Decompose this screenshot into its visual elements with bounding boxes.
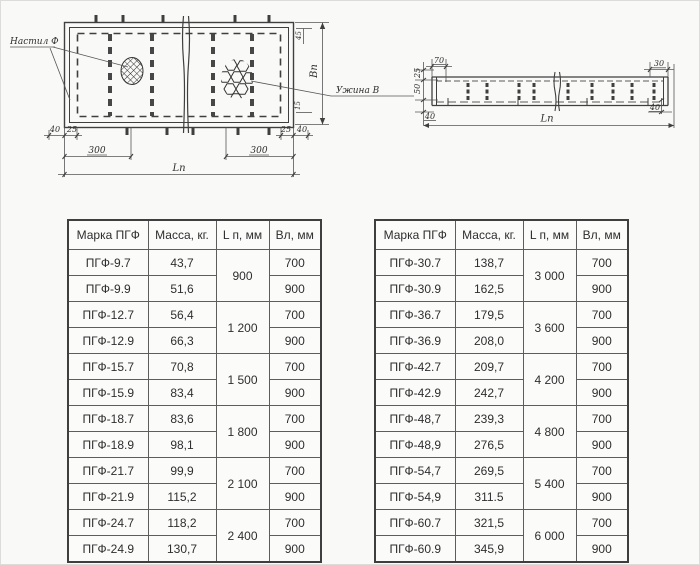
cell-mark: ПГФ-24.7 (68, 510, 148, 536)
cell-width: 900 (576, 276, 628, 302)
cell-mark: ПГФ-30.9 (375, 276, 455, 302)
elev-dim-30: 30 (644, 59, 674, 77)
cell-mark: ПГФ-42.7 (375, 354, 455, 380)
dim-40-right: 40 (296, 125, 307, 134)
cell-width: 900 (269, 328, 321, 354)
cell-mass: 321,5 (455, 510, 523, 536)
elev-dim-70: 70 (426, 56, 452, 82)
dim-300-right: 300 (250, 146, 267, 156)
header-row: Марка ПГФМасса, кг.L п, ммВл, мм (375, 220, 628, 250)
cell-width: 900 (576, 432, 628, 458)
hatched-opening (121, 58, 143, 85)
callout-nastil: Настил Ф (9, 37, 59, 47)
table-row: ПГФ-24.7118,22 400700 (68, 510, 321, 536)
table-row: ПГФ-42.7209,74 200700 (375, 354, 628, 380)
cell-mark: ПГФ-15.9 (68, 380, 148, 406)
cell-mark: ПГФ-42.9 (375, 380, 455, 406)
cell-mark: ПГФ-9.7 (68, 250, 148, 276)
svg-text:Lп: Lп (539, 114, 553, 125)
svg-text:40: 40 (649, 103, 660, 112)
cell-mass: 179,5 (455, 302, 523, 328)
cell-length: 4 200 (523, 354, 576, 406)
svg-text:70: 70 (434, 56, 444, 65)
table-row: ПГФ-30.7138,73 000700 (375, 250, 628, 276)
elevation-view: 70 30 25 50 40 (413, 56, 674, 128)
table-row: ПГФ-18.783,61 800700 (68, 406, 321, 432)
cell-width: 700 (269, 250, 321, 276)
cell-mass: 209,7 (455, 354, 523, 380)
cell-mass: 83,4 (148, 380, 216, 406)
elevation-ribs (468, 83, 654, 100)
cell-length: 1 500 (216, 354, 269, 406)
table-row: ПГФ-60.9345,9900 (375, 536, 628, 563)
table-row: ПГФ-9.743,7900700 (68, 250, 321, 276)
cell-mark: ПГФ-21.9 (68, 484, 148, 510)
column-header: Вл, мм (269, 220, 321, 250)
column-header: Марка ПГФ (375, 220, 455, 250)
cell-length: 900 (216, 250, 269, 302)
table-row: ПГФ-48,9276,5900 (375, 432, 628, 458)
cell-width: 700 (269, 458, 321, 484)
cell-length: 2 100 (216, 458, 269, 510)
column-header: Марка ПГФ (68, 220, 148, 250)
table-row: ПГФ-54,9311.5900 (375, 484, 628, 510)
cell-mass: 99,9 (148, 458, 216, 484)
cell-mark: ПГФ-36.9 (375, 328, 455, 354)
cell-mark: ПГФ-60.7 (375, 510, 455, 536)
svg-text:30: 30 (654, 59, 664, 68)
cell-length: 5 400 (523, 458, 576, 510)
column-header: L п, мм (216, 220, 269, 250)
cell-mark: ПГФ-30.7 (375, 250, 455, 276)
table-row: ПГФ-12.756,41 200700 (68, 302, 321, 328)
plan-dim-level2: 300 300 (63, 128, 296, 161)
cell-mass: 130,7 (148, 536, 216, 563)
column-header: L п, мм (523, 220, 576, 250)
cell-mass: 98,1 (148, 432, 216, 458)
table-row: ПГФ-9.951,6900 (68, 276, 321, 302)
cell-mass: 115,2 (148, 484, 216, 510)
scanned-spec-sheet: { "drawing": { "plan": { "callout_left":… (0, 0, 700, 565)
cell-width: 900 (576, 484, 628, 510)
cell-mark: ПГФ-21.7 (68, 458, 148, 484)
cell-width: 700 (576, 458, 628, 484)
table-row: ПГФ-36.7179,53 600700 (375, 302, 628, 328)
cell-length: 4 800 (523, 406, 576, 458)
table-row: ПГФ-15.770,81 500700 (68, 354, 321, 380)
cell-mark: ПГФ-48,7 (375, 406, 455, 432)
spec-table-right: Марка ПГФМасса, кг.L п, ммВл, мм ПГФ-30.… (374, 219, 629, 563)
cell-mass: 162,5 (455, 276, 523, 302)
cell-mass: 66,3 (148, 328, 216, 354)
cell-length: 2 400 (216, 510, 269, 563)
table-row: ПГФ-42.9242,7900 (375, 380, 628, 406)
table-row: ПГФ-60.7321,56 000700 (375, 510, 628, 536)
column-header: Масса, кг. (148, 220, 216, 250)
plan-view: Настил Ф Ужина В 45 15 Вп (9, 15, 414, 177)
dim-45: 45 (295, 31, 303, 41)
dim-40-left: 40 (49, 125, 60, 134)
cell-mass: 83,6 (148, 406, 216, 432)
cell-length: 1 200 (216, 302, 269, 354)
cell-width: 900 (576, 328, 628, 354)
cell-mark: ПГФ-12.9 (68, 328, 148, 354)
table-row: ПГФ-24.9130,7900 (68, 536, 321, 563)
table-row: ПГФ-12.966,3900 (68, 328, 321, 354)
cell-width: 900 (576, 380, 628, 406)
cell-length: 6 000 (523, 510, 576, 563)
cell-mass: 242,7 (455, 380, 523, 406)
cell-mass: 311.5 (455, 484, 523, 510)
cell-mass: 276,5 (455, 432, 523, 458)
cell-width: 700 (576, 250, 628, 276)
column-header: Вл, мм (576, 220, 628, 250)
dim-25-left: 25 (66, 125, 77, 134)
cell-width: 700 (269, 354, 321, 380)
dim-25-right: 25 (280, 125, 291, 134)
dim-15: 15 (294, 101, 302, 110)
table-row: ПГФ-18.998,1900 (68, 432, 321, 458)
cell-width: 900 (269, 536, 321, 563)
cell-length: 1 800 (216, 406, 269, 458)
cell-width: 700 (269, 302, 321, 328)
table-row: ПГФ-48,7239,34 800700 (375, 406, 628, 432)
table-row: ПГФ-21.799,92 100700 (68, 458, 321, 484)
plan-dim-length: Lп (58, 163, 300, 177)
header-row: Марка ПГФМасса, кг.L п, ммВл, мм (68, 220, 321, 250)
cell-mass: 118,2 (148, 510, 216, 536)
spec-table-left: Марка ПГФМасса, кг.L п, ммВл, мм ПГФ-9.7… (67, 219, 322, 563)
honeycomb-opening (219, 60, 255, 104)
svg-text:25: 25 (413, 68, 422, 79)
cell-mark: ПГФ-54,9 (375, 484, 455, 510)
cell-width: 900 (269, 432, 321, 458)
cell-mass: 138,7 (455, 250, 523, 276)
cell-width: 900 (269, 276, 321, 302)
cell-width: 700 (576, 510, 628, 536)
cell-mark: ПГФ-24.9 (68, 536, 148, 563)
elev-dim-length: Lп (424, 64, 675, 128)
cell-mass: 239,3 (455, 406, 523, 432)
cell-mass: 345,9 (455, 536, 523, 563)
cell-mark: ПГФ-9.9 (68, 276, 148, 302)
cell-mark: ПГФ-54,7 (375, 458, 455, 484)
cell-width: 700 (576, 354, 628, 380)
cell-mass: 208,0 (455, 328, 523, 354)
cell-mark: ПГФ-18.7 (68, 406, 148, 432)
elev-dim-left: 25 50 40 (413, 62, 438, 126)
cell-width: 900 (269, 380, 321, 406)
table-row: ПГФ-30.9162,5900 (375, 276, 628, 302)
cell-mass: 70,8 (148, 354, 216, 380)
cell-mass: 43,7 (148, 250, 216, 276)
svg-text:40: 40 (424, 112, 435, 121)
table-row: ПГФ-21.9115,2900 (68, 484, 321, 510)
column-header: Масса, кг. (455, 220, 523, 250)
table-row: ПГФ-15.983,4900 (68, 380, 321, 406)
svg-text:50: 50 (413, 84, 422, 94)
dim-lp-plan: Lп (171, 163, 185, 174)
cell-length: 3 000 (523, 250, 576, 302)
dim-300-left: 300 (88, 146, 105, 156)
technical-drawing: Настил Ф Ужина В 45 15 Вп (0, 0, 700, 212)
table-row: ПГФ-54,7269,55 400700 (375, 458, 628, 484)
cell-mark: ПГФ-12.7 (68, 302, 148, 328)
cell-width: 700 (269, 406, 321, 432)
table-row: ПГФ-36.9208,0900 (375, 328, 628, 354)
cell-mark: ПГФ-48,9 (375, 432, 455, 458)
callout-uzhina: Ужина В (336, 86, 380, 96)
dim-bp: Вп (309, 64, 320, 79)
cell-length: 3 600 (523, 302, 576, 354)
cell-mark: ПГФ-36.7 (375, 302, 455, 328)
cell-mass: 51,6 (148, 276, 216, 302)
cell-mark: ПГФ-15.7 (68, 354, 148, 380)
cell-width: 900 (269, 484, 321, 510)
cell-mark: ПГФ-60.9 (375, 536, 455, 563)
cell-width: 700 (576, 406, 628, 432)
cell-mark: ПГФ-18.9 (68, 432, 148, 458)
cell-mass: 56,4 (148, 302, 216, 328)
cell-width: 900 (576, 536, 628, 563)
cell-mass: 269,5 (455, 458, 523, 484)
cell-width: 700 (269, 510, 321, 536)
cell-width: 700 (576, 302, 628, 328)
